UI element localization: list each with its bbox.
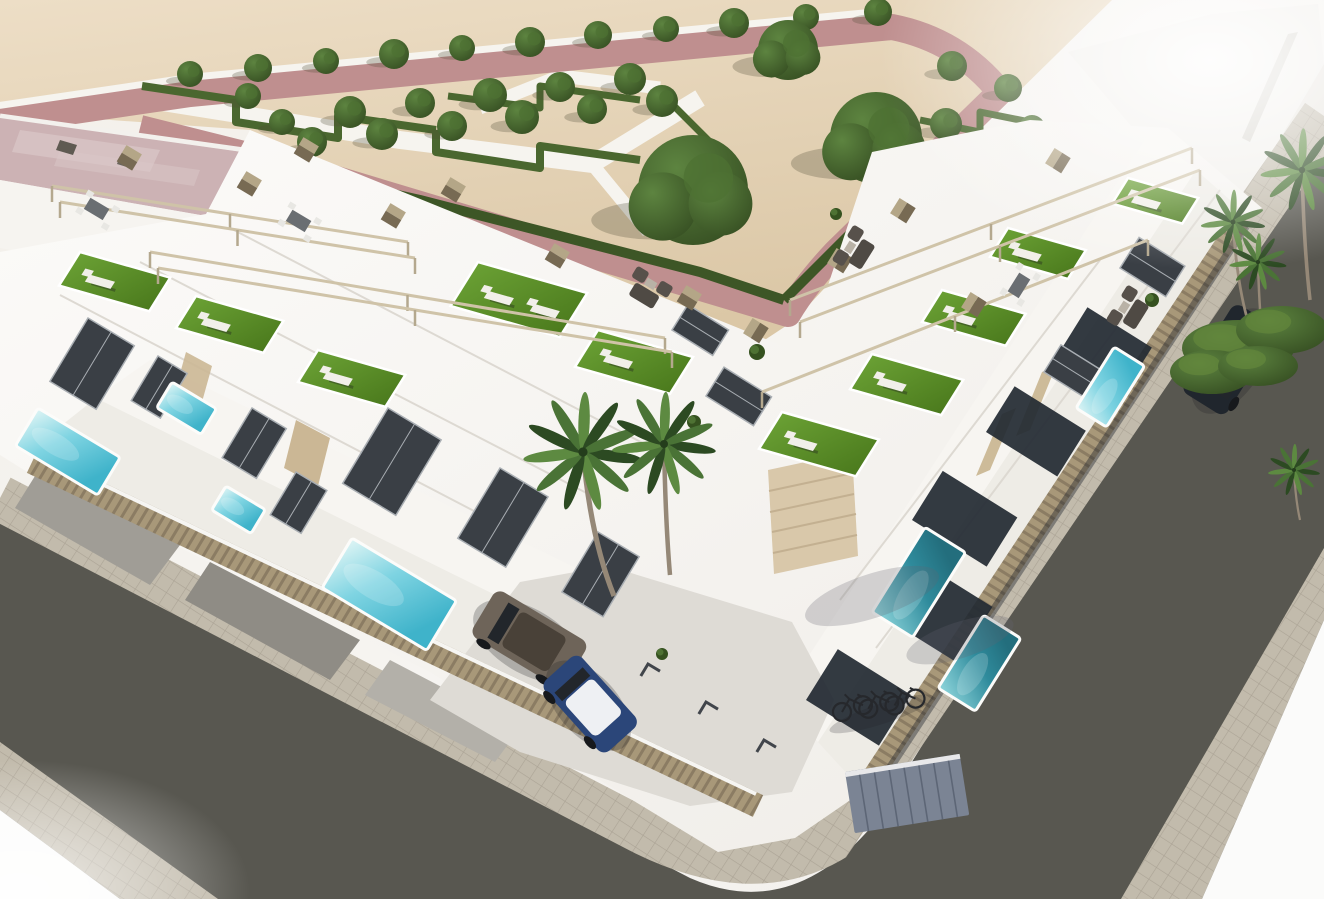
plant-highlight <box>688 416 696 424</box>
tree-highlight <box>659 90 673 104</box>
palm-crown <box>578 447 587 456</box>
tree-highlight <box>876 3 889 16</box>
palm-crown <box>660 440 668 448</box>
tree-highlight <box>246 87 258 99</box>
tree-highlight <box>460 39 472 51</box>
potted-plant <box>656 648 668 660</box>
potted-plant <box>749 344 765 360</box>
tree-highlight <box>256 59 269 72</box>
tree-highlight <box>280 113 292 125</box>
tree-highlight <box>519 106 534 121</box>
tree-highlight <box>596 26 609 39</box>
tree-highlight <box>627 68 641 82</box>
tree-highlight <box>379 123 393 137</box>
tree-highlight <box>527 32 541 46</box>
tree-highlight <box>391 44 405 58</box>
palm-crown <box>1292 468 1296 472</box>
bush-highlight <box>1245 310 1291 334</box>
tree-highlight <box>783 30 810 57</box>
tree-highlight <box>589 99 603 113</box>
bush-highlight <box>1178 353 1220 375</box>
tree-highlight <box>684 153 734 203</box>
aerial-render-canvas <box>0 0 1324 899</box>
tree-highlight <box>557 77 571 91</box>
potted-plant <box>830 208 842 220</box>
tree-highlight <box>417 93 431 107</box>
tree-highlight <box>347 101 361 115</box>
plant-highlight <box>657 649 664 656</box>
bush-highlight <box>1226 349 1266 369</box>
tree-highlight <box>731 13 745 27</box>
tree-highlight <box>664 20 676 32</box>
plant-highlight <box>1146 294 1154 302</box>
tree-highlight <box>804 8 816 20</box>
plant-highlight <box>831 209 838 216</box>
tree-highlight <box>324 52 336 64</box>
tree-highlight <box>449 116 463 130</box>
tree-highlight <box>188 65 200 77</box>
architectural-render <box>0 0 1324 899</box>
tree-highlight <box>487 84 502 99</box>
plant-highlight <box>750 345 759 354</box>
